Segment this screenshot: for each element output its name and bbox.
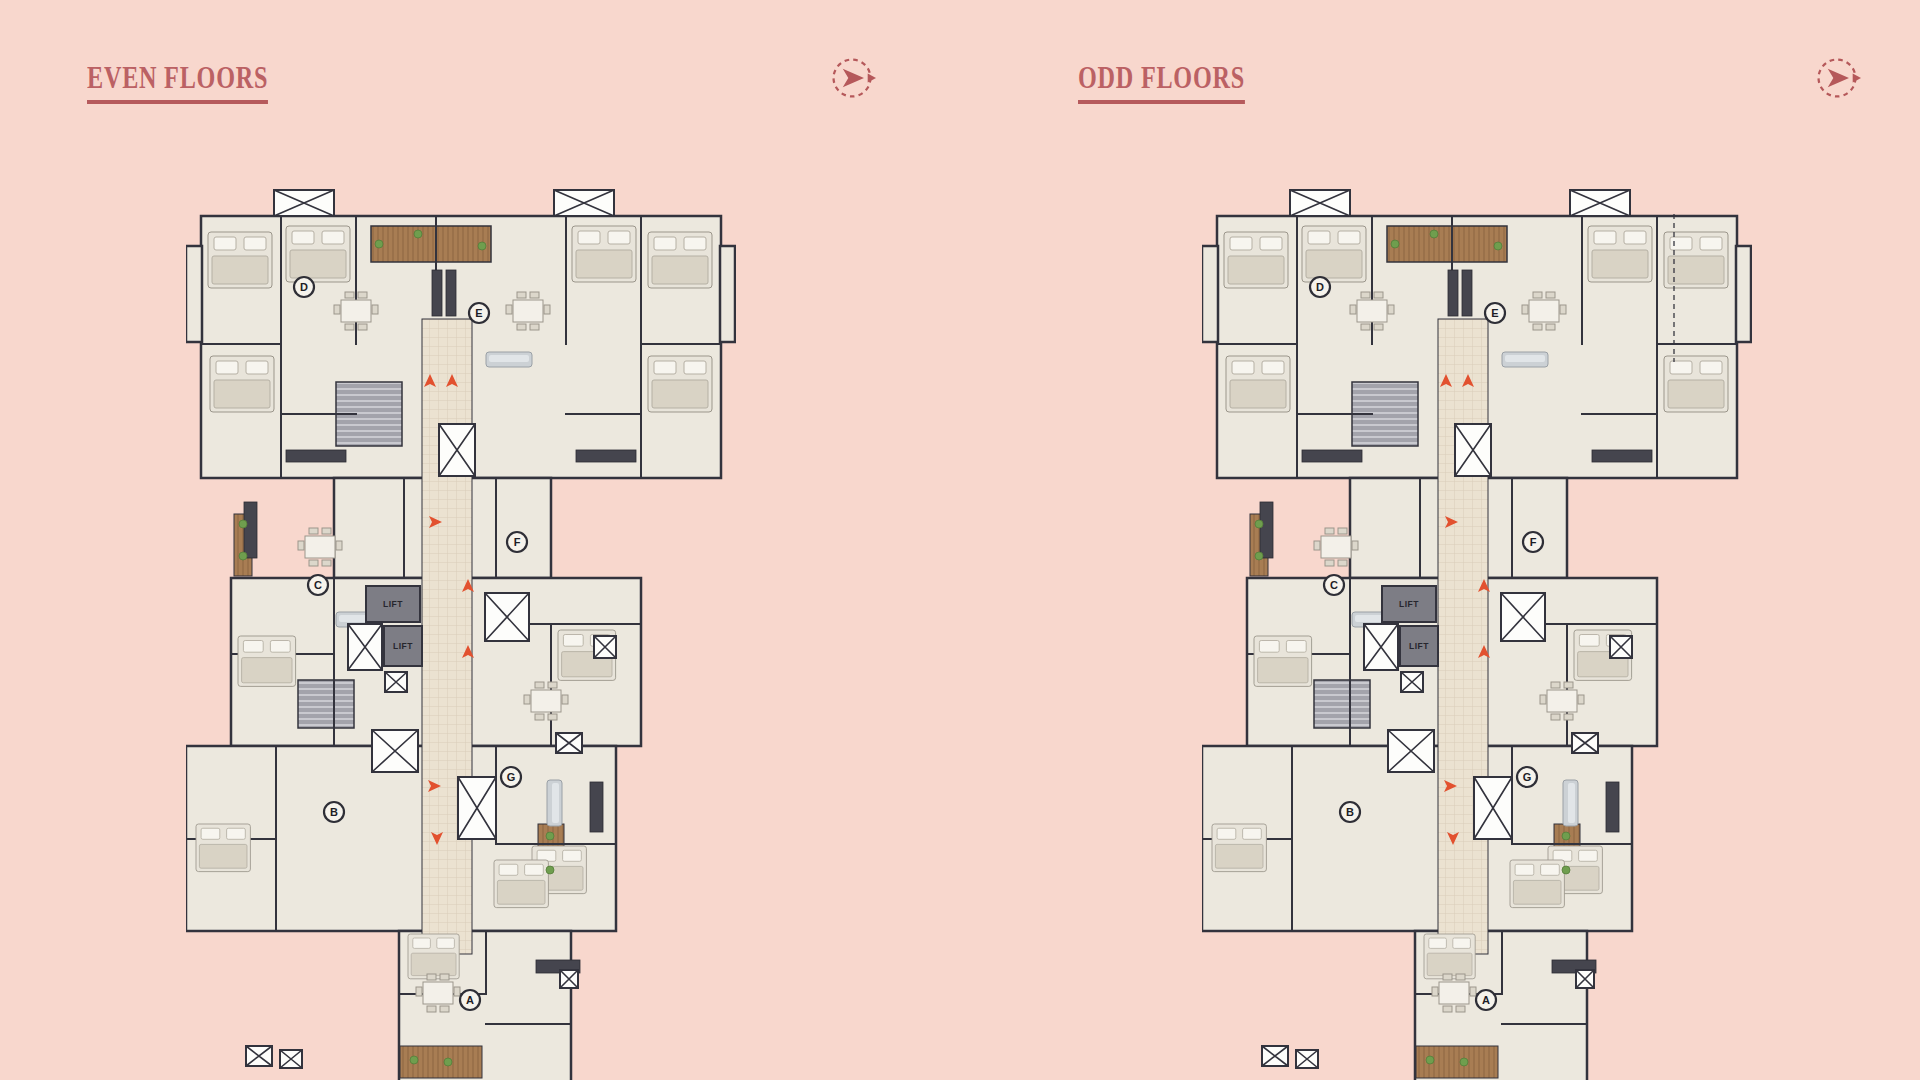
unit-letter: F [1530,536,1537,548]
paper-plane-arrow-icon [828,54,876,102]
lift-label: LIFT [383,599,403,609]
even-floors-plan: LIFTLIFTABCDEFG [186,184,736,1080]
unit-letter: E [1491,307,1498,319]
odd-floors-title: ODD FLOORS [1078,62,1245,104]
unit-letter: G [507,771,516,783]
even-floors-title: EVEN FLOORS [87,62,268,104]
unit-letter: A [466,994,474,1006]
unit-letter: E [475,307,482,319]
unit-letter: C [314,579,322,591]
floor-plans-page: EVEN FLOORS ODD FLOORS LIFTLIFTABCDEFG L… [0,0,1920,1080]
unit-letter: D [1316,281,1324,293]
lift-label: LIFT [1409,641,1429,651]
odd-floors-plan: LIFTLIFTABCDEFG [1202,184,1752,1080]
lift-label: LIFT [1399,599,1419,609]
unit-letter: F [514,536,521,548]
unit-letter: A [1482,994,1490,1006]
lift-label: LIFT [393,641,413,651]
unit-letter: G [1523,771,1532,783]
unit-letter: B [1346,806,1354,818]
unit-letter: B [330,806,338,818]
unit-letter: D [300,281,308,293]
even-floors-next-button[interactable] [828,54,876,102]
odd-floors-next-button[interactable] [1813,54,1861,102]
paper-plane-arrow-icon [1813,54,1861,102]
unit-letter: C [1330,579,1338,591]
